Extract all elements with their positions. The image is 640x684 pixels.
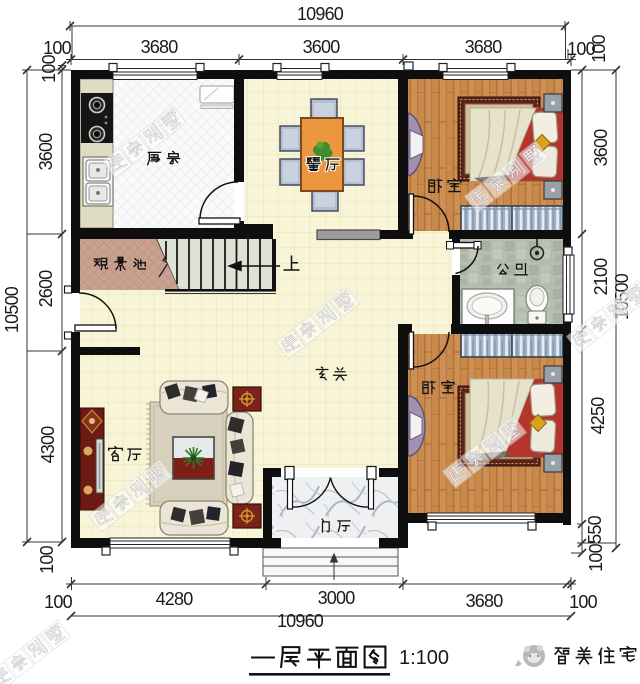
svg-text:2600: 2600	[36, 270, 56, 308]
svg-text:10500: 10500	[2, 286, 22, 333]
svg-text:100: 100	[43, 38, 71, 58]
svg-text:2100: 2100	[591, 258, 611, 296]
svg-text:100: 100	[39, 54, 59, 82]
svg-text:4280: 4280	[156, 589, 194, 609]
svg-text:4250: 4250	[588, 397, 608, 435]
svg-text:100: 100	[589, 34, 609, 62]
svg-text:1:100: 1:100	[399, 647, 449, 669]
svg-text:100: 100	[37, 545, 57, 573]
svg-text:3680: 3680	[141, 37, 179, 57]
svg-text:3600: 3600	[591, 129, 611, 167]
svg-text:100: 100	[586, 543, 606, 571]
svg-text:10960: 10960	[297, 4, 344, 24]
svg-text:100: 100	[569, 592, 597, 612]
svg-text:3680: 3680	[466, 591, 504, 611]
svg-text:4300: 4300	[38, 426, 58, 464]
svg-text:3600: 3600	[36, 133, 56, 171]
svg-text:100: 100	[44, 592, 72, 612]
svg-text:3600: 3600	[303, 37, 341, 57]
svg-text:3680: 3680	[465, 37, 503, 57]
svg-text:10960: 10960	[277, 611, 324, 631]
svg-text:3000: 3000	[318, 588, 356, 608]
svg-text:550: 550	[585, 515, 605, 543]
